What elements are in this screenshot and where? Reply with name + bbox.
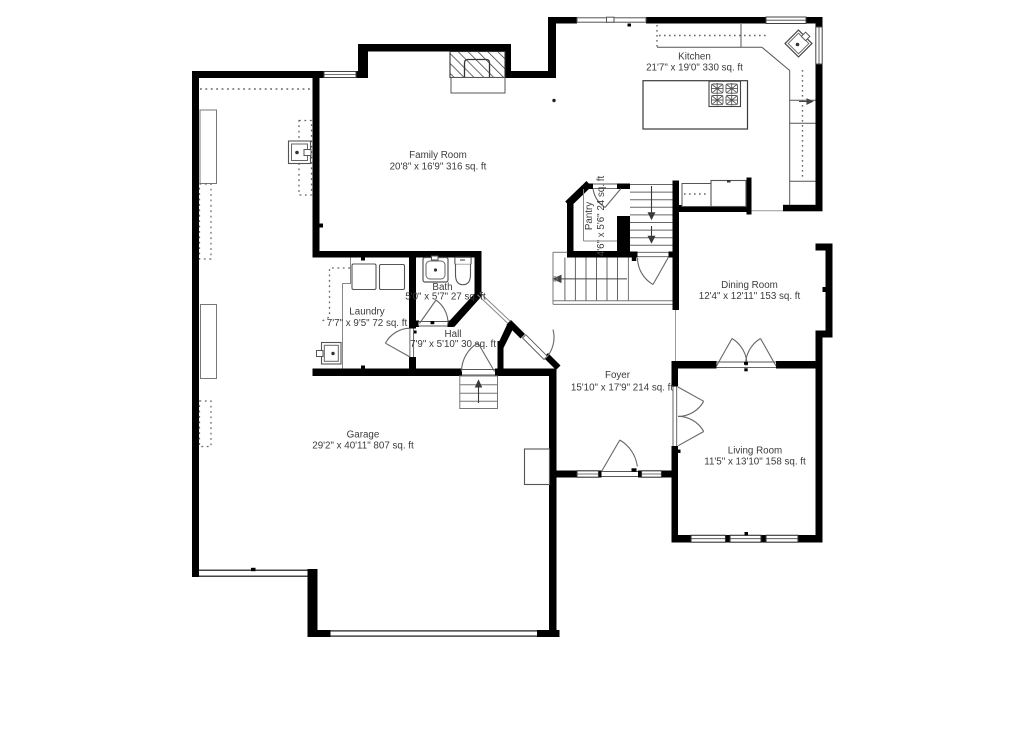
svg-text:7'9" x 5'10" 30 sq. ft: 7'9" x 5'10" 30 sq. ft — [410, 339, 496, 350]
svg-text:20'8" x 16'9" 316 sq. ft: 20'8" x 16'9" 316 sq. ft — [390, 161, 487, 172]
svg-text:Kitchen: Kitchen — [678, 52, 711, 63]
svg-text:Family Room: Family Room — [409, 150, 467, 161]
svg-text:Laundry: Laundry — [349, 307, 385, 318]
svg-text:11'5" x 13'10" 158 sq. ft: 11'5" x 13'10" 158 sq. ft — [704, 457, 806, 468]
svg-text:Foyer: Foyer — [605, 370, 631, 381]
svg-text:12'4" x 12'11" 153 sq. ft: 12'4" x 12'11" 153 sq. ft — [699, 291, 801, 302]
svg-text:Dining Room: Dining Room — [721, 280, 778, 291]
svg-text:7'7" x 9'5" 72 sq. ft: 7'7" x 9'5" 72 sq. ft — [327, 318, 408, 329]
svg-text:21'7" x 19'0" 330 sq. ft: 21'7" x 19'0" 330 sq. ft — [646, 63, 743, 74]
svg-text:15'10" x 17'9" 214 sq. ft: 15'10" x 17'9" 214 sq. ft — [571, 383, 673, 394]
svg-text:29'2" x 40'11" 807 sq. ft: 29'2" x 40'11" 807 sq. ft — [312, 441, 414, 452]
svg-text:Garage: Garage — [347, 430, 380, 441]
svg-text:Pantry: Pantry — [584, 202, 595, 230]
svg-text:Living Room: Living Room — [728, 446, 782, 457]
svg-text:5'0" x 5'7" 27 sq. ft: 5'0" x 5'7" 27 sq. ft — [405, 292, 486, 303]
svg-text:4'6" x 5'6" 24 sq. ft: 4'6" x 5'6" 24 sq. ft — [596, 176, 607, 257]
